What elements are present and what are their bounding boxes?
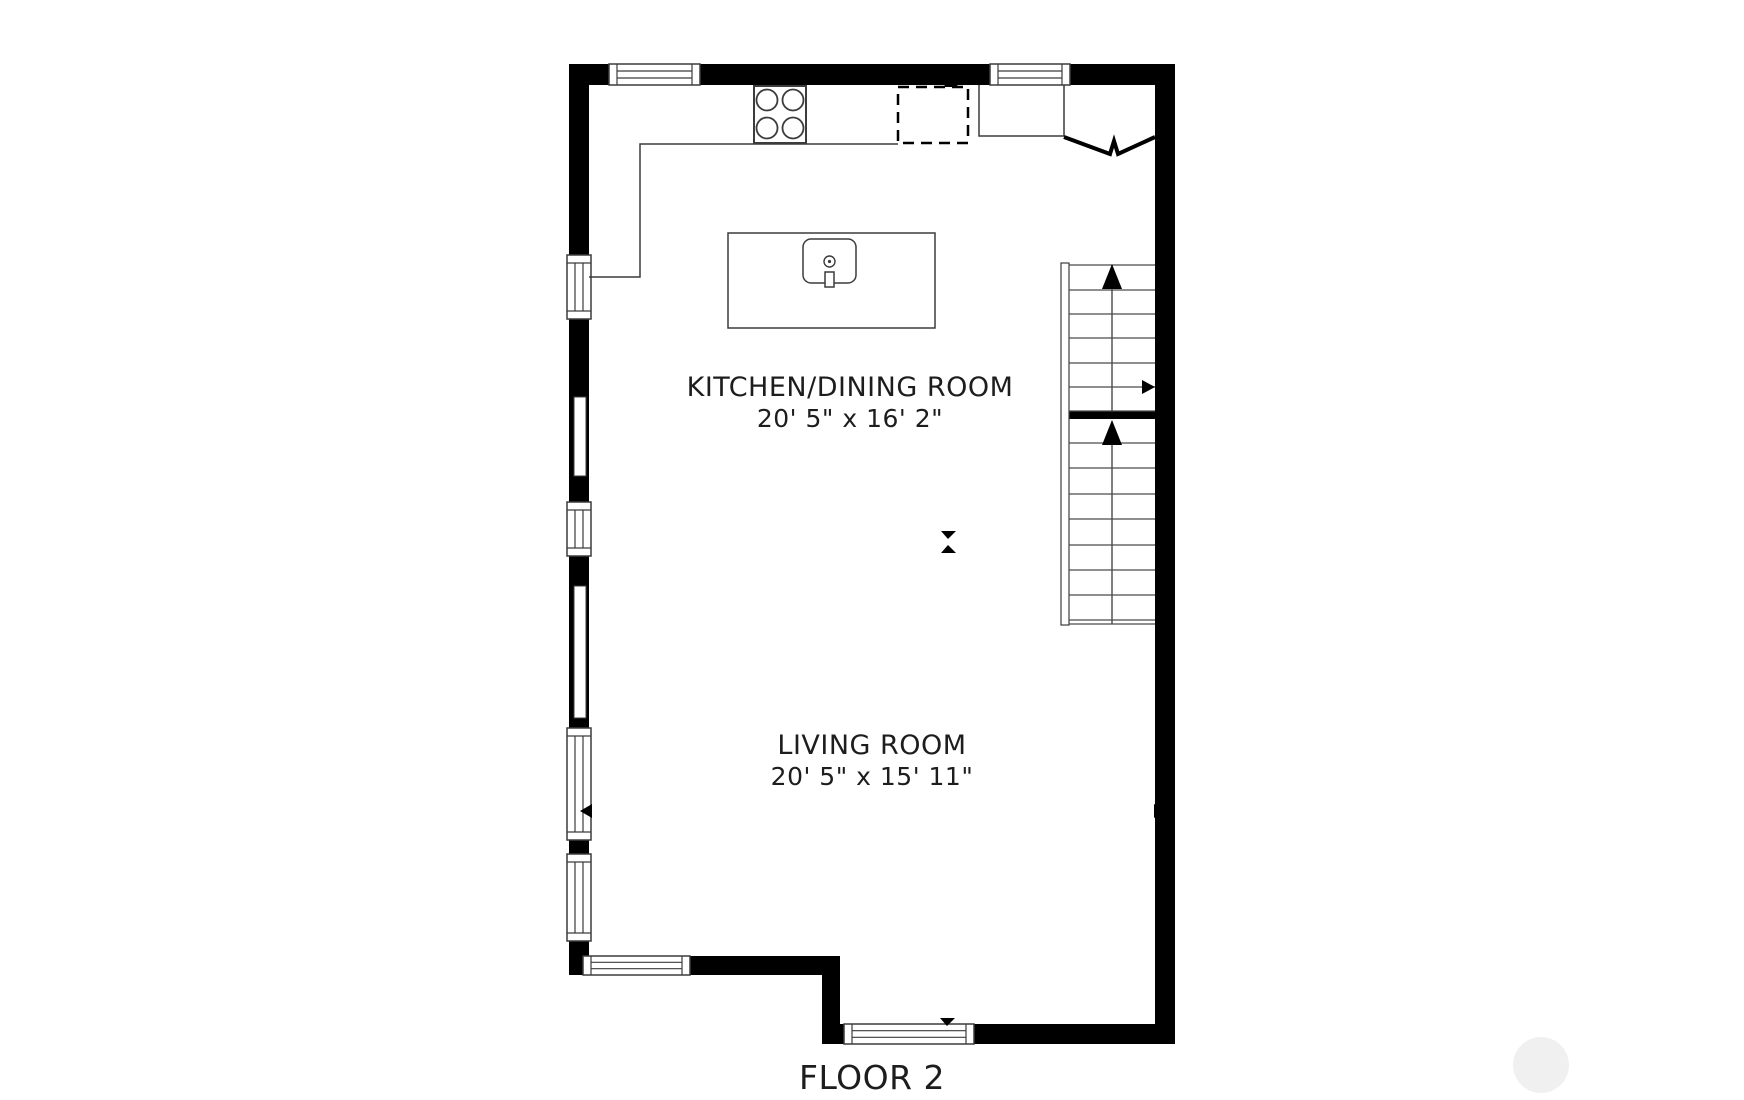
top-window-1 — [609, 64, 700, 85]
floor-title: FLOOR 2 — [799, 1058, 945, 1097]
sink-faucet — [825, 272, 834, 287]
stairs-right-arrow-icon — [1142, 380, 1155, 394]
bottom-window-2 — [844, 1024, 974, 1044]
bottom-wall-upper-seg-2 — [690, 956, 840, 975]
living-room-label: LIVING ROOM 20' 5" x 15' 11" — [771, 730, 974, 792]
right-wall — [1155, 64, 1175, 1044]
kitchen-label: KITCHEN/DINING ROOM 20' 5" x 16' 2" — [687, 372, 1014, 434]
kitchen-room-name: KITCHEN/DINING ROOM — [687, 372, 1014, 404]
bottom-wall-upper-seg-1 — [569, 956, 583, 975]
bottom-wall-lower-seg-2 — [974, 1024, 1175, 1044]
left-window-1 — [567, 255, 591, 319]
left-wall-seg-4 — [569, 840, 589, 854]
refrigerator-dashed — [898, 87, 968, 143]
arrow-up-mid-icon — [941, 545, 956, 553]
floor-plan-page: KITCHEN/DINING ROOM 20' 5" x 16' 2" LIVI… — [0, 0, 1744, 1100]
kitchen-counter-right — [979, 85, 1064, 136]
top-wall-seg-2 — [700, 64, 990, 85]
floor-plan-drawing — [0, 0, 1744, 1100]
living-room-name: LIVING ROOM — [771, 730, 974, 762]
bifold-door — [1064, 137, 1155, 154]
top-window-2 — [990, 64, 1070, 85]
stairs-up-arrow-lower-icon — [1102, 420, 1122, 445]
left-wall-seg-1 — [569, 64, 589, 255]
living-room-dims: 20' 5" x 15' 11" — [771, 762, 974, 792]
stove-burner-3 — [757, 118, 778, 139]
arrow-down-mid-icon — [941, 531, 956, 539]
stairs-landing-divider — [1069, 411, 1155, 419]
kitchen-room-dims: 20' 5" x 16' 2" — [687, 404, 1014, 434]
sink-drain-dot — [828, 260, 831, 263]
bottom-window-1 — [583, 956, 690, 975]
stove-burner-4 — [783, 118, 804, 139]
left-window-slit-1 — [574, 397, 586, 476]
stairs-railing — [1061, 263, 1069, 625]
stove-burner-1 — [757, 90, 778, 111]
left-window-slit-2 — [574, 586, 586, 718]
stairs-up-arrow-upper-icon — [1102, 264, 1122, 289]
left-window-4 — [567, 854, 591, 941]
left-window-3 — [567, 728, 591, 840]
stove-burner-2 — [783, 90, 804, 111]
watermark-logo-icon — [1513, 1037, 1569, 1093]
bottom-wall-lower-seg-1 — [822, 1024, 844, 1044]
